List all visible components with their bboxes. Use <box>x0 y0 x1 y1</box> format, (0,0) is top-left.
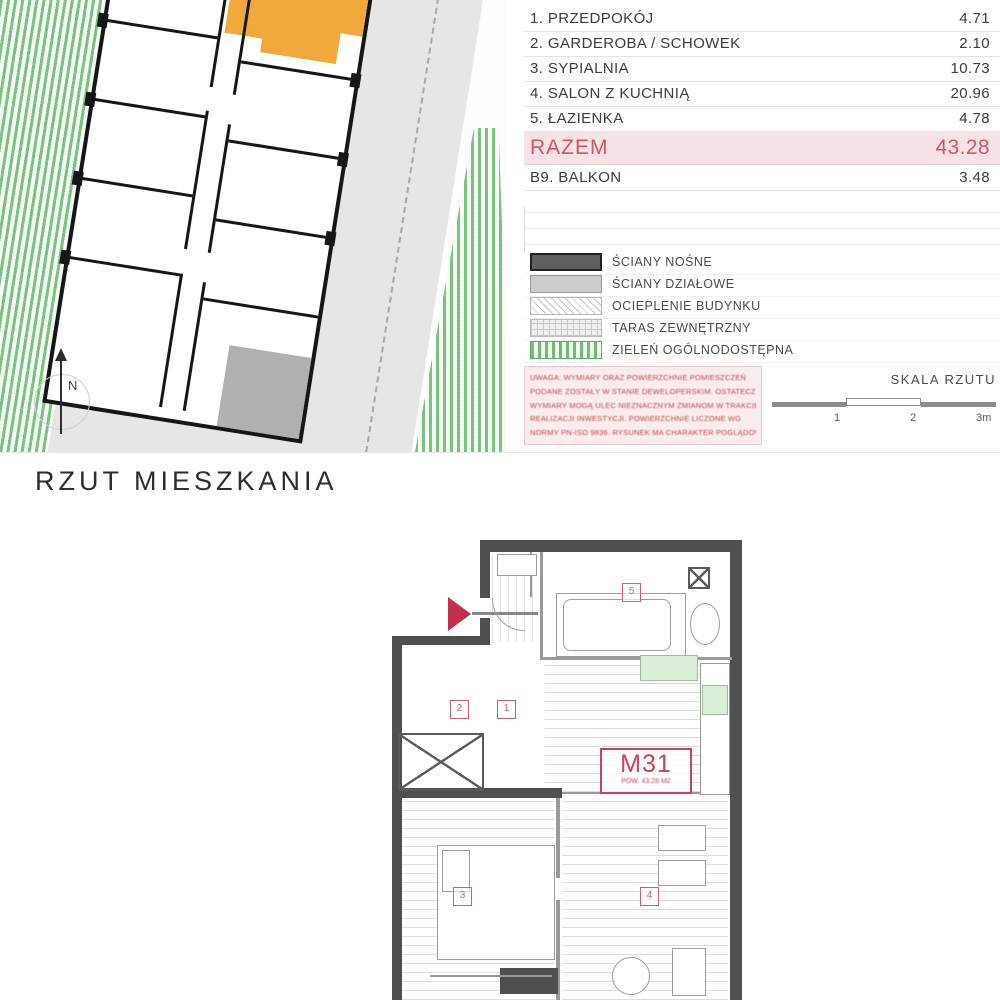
scale-bar <box>772 398 996 412</box>
room-marker-1: 1 <box>497 700 516 719</box>
legend-label: ŚCIANY DZIAŁOWE <box>612 277 735 291</box>
balcony-label: B9. BALKON <box>530 169 622 186</box>
round-table <box>612 957 650 995</box>
total-row: RAZEM 43.28 <box>524 132 1000 165</box>
balcony-area: 3.48 <box>959 169 990 186</box>
wall-segment <box>228 139 343 160</box>
north-indicator: N <box>30 348 110 448</box>
partition-wall <box>556 798 560 878</box>
north-label: N <box>68 378 77 393</box>
table-row: 2. GARDEROBA / SCHOWEK 2.10 <box>524 31 1000 57</box>
entrance-arrow-icon <box>448 597 471 631</box>
wardrobe <box>398 733 484 791</box>
room-area: 10.73 <box>950 60 990 77</box>
apartment-plan: 1 2 3 4 5 M31 POW. 43.28 M2 <box>0 505 1000 1000</box>
room-marker-5: 5 <box>622 583 641 602</box>
north-arrowhead-icon <box>55 348 67 361</box>
table-left-border <box>524 206 525 252</box>
table-header: POMIESZCZENIE POW. [M2] <box>524 0 1000 5</box>
table-row: 1. PRZEDPOKÓJ 4.71 <box>524 6 1000 32</box>
room-marker-2: 2 <box>450 700 469 719</box>
empty-row-line <box>524 212 1000 213</box>
section-title: RZUT MIESZKANIA <box>35 466 338 497</box>
scale-tick-3: 3m <box>976 412 991 424</box>
unit-sub-text: POW. 43.28 M2 <box>602 778 690 786</box>
window-sill <box>430 975 552 977</box>
disclaimer-line: NORMY PN-ISO 9836. RYSUNEK MA CHARAKTER … <box>530 426 756 440</box>
partition-wall <box>540 552 543 660</box>
table-row: 3. SYPIALNIA 10.73 <box>524 56 1000 82</box>
disclaimer-box: UWAGA: WYMIARY ORAZ POWIERZCHNIE POMIESZ… <box>524 366 762 445</box>
wall-segment <box>159 273 183 407</box>
disclaimer-line: PODANE ZOSTAŁY W STANIE DEWELOPERSKIM. O… <box>530 385 756 399</box>
legend-swatch-greenery <box>530 341 602 359</box>
scale-segment <box>846 398 921 406</box>
legend-item: ŚCIANY DZIAŁOWE <box>524 274 1000 297</box>
wall-segment <box>480 540 742 552</box>
balcony-row: B9. BALKON 3.48 <box>524 165 1000 191</box>
unit-label-box: M31 POW. 43.28 M2 <box>600 748 692 794</box>
sofa <box>672 948 706 996</box>
kitchen-counter <box>700 663 730 795</box>
section-divider <box>0 452 1000 453</box>
room-label: 4. SALON Z KUCHNIĄ <box>530 85 690 102</box>
wall-segment <box>208 124 231 253</box>
wall-segment <box>392 636 402 1000</box>
legend-item: ZIELEŃ OGÓLNODOSTĘPNA <box>524 340 1000 363</box>
stairwell-block <box>217 345 312 439</box>
legend-label: ŚCIANY NOŚNE <box>612 255 712 269</box>
legend-item: ŚCIANY NOŚNE <box>524 252 1000 275</box>
wall-segment <box>480 540 490 598</box>
wall-segment <box>730 540 742 1000</box>
disclaimer-line: UWAGA: WYMIARY ORAZ POWIERZCHNIE POMIESZ… <box>530 371 756 385</box>
info-panel: POMIESZCZENIE POW. [M2] 1. PRZEDPOKÓJ 4.… <box>524 0 1000 452</box>
scale-tick-1: 1 <box>834 412 840 424</box>
legend-label: OCIEPLENIE BUDYNKU <box>612 299 761 313</box>
wall-notch <box>72 171 84 186</box>
table-row: 5. ŁAZIENKA 4.78 <box>524 106 1000 132</box>
empty-row-line <box>524 244 1000 245</box>
wall-segment <box>203 297 318 318</box>
table-row: 4. SALON Z KUCHNIĄ 20.96 <box>524 81 1000 107</box>
pillow <box>442 850 470 892</box>
wall-segment <box>216 218 331 239</box>
legend-item: TARAS ZEWNĘTRZNY <box>524 318 1000 341</box>
site-plan: N <box>0 0 506 452</box>
total-label: RAZEM <box>530 136 609 160</box>
wall-segment <box>183 282 206 411</box>
partition-wall <box>540 657 732 660</box>
compass-circle-icon <box>34 374 90 430</box>
room-area: 4.71 <box>959 10 990 27</box>
armchair <box>658 825 706 851</box>
room-label: 1. PRZEDPOKÓJ <box>530 10 654 27</box>
wall-segment <box>82 177 193 197</box>
scale-segment <box>772 402 846 407</box>
room-marker-4: 4 <box>640 887 659 906</box>
bathtub-inner <box>563 599 671 651</box>
disclaimer-line: REALIZACJI INWESTYCJI. POWIERZCHNIE LICZ… <box>530 412 756 426</box>
total-value: 43.28 <box>935 136 990 160</box>
north-arrow-icon <box>60 356 62 434</box>
washbasin <box>690 603 720 645</box>
legend-label: TARAS ZEWNĘTRZNY <box>612 321 751 335</box>
wall-segment <box>241 60 356 81</box>
unit-number: M31 <box>602 750 690 778</box>
floorplan-page: N POMIESZCZENIE POW. [M2] 1. PRZEDPOKÓJ … <box>0 0 1000 1000</box>
wall-notch <box>59 250 71 265</box>
room-marker-3: 3 <box>453 887 472 906</box>
scale-tick-2: 2 <box>910 412 916 424</box>
wall-notch <box>97 13 109 28</box>
wall-segment <box>107 19 218 39</box>
wall-segment <box>69 256 180 276</box>
legend-label: ZIELEŃ OGÓLNODOSTĘPNA <box>612 343 793 357</box>
wall-segment <box>392 636 488 645</box>
closet-fixture <box>497 554 537 576</box>
kitchen-sink <box>702 685 728 715</box>
room-area: 20.96 <box>950 85 990 102</box>
vent-shaft <box>688 567 710 589</box>
wall-notch <box>84 92 96 107</box>
room-area: 2.10 <box>959 35 990 52</box>
wall-segment <box>94 98 205 118</box>
legend-swatch-load-bearing <box>530 253 602 271</box>
scale-segment <box>921 402 996 407</box>
armchair <box>658 860 706 886</box>
disclaimer-line: WYMIARY MOGĄ ULEC NIEZNACZNYM ZMIANOM W … <box>530 399 756 413</box>
kitchen-worktop <box>640 655 698 681</box>
legend-swatch-partition <box>530 275 602 293</box>
room-label: 3. SYPIALNIA <box>530 60 629 77</box>
legend-swatch-terrace <box>530 319 602 337</box>
room-area: 4.78 <box>959 110 990 127</box>
room-label: 5. ŁAZIENKA <box>530 110 624 127</box>
room-label: 2. GARDEROBA / SCHOWEK <box>530 35 741 52</box>
empty-row-line <box>524 228 1000 229</box>
wall-segment <box>184 110 209 249</box>
legend-swatch-insulation <box>530 297 602 315</box>
legend-item: OCIEPLENIE BUDYNKU <box>524 296 1000 319</box>
scale-title: SKALA RZUTU <box>764 372 996 387</box>
wall-segment <box>500 968 558 994</box>
